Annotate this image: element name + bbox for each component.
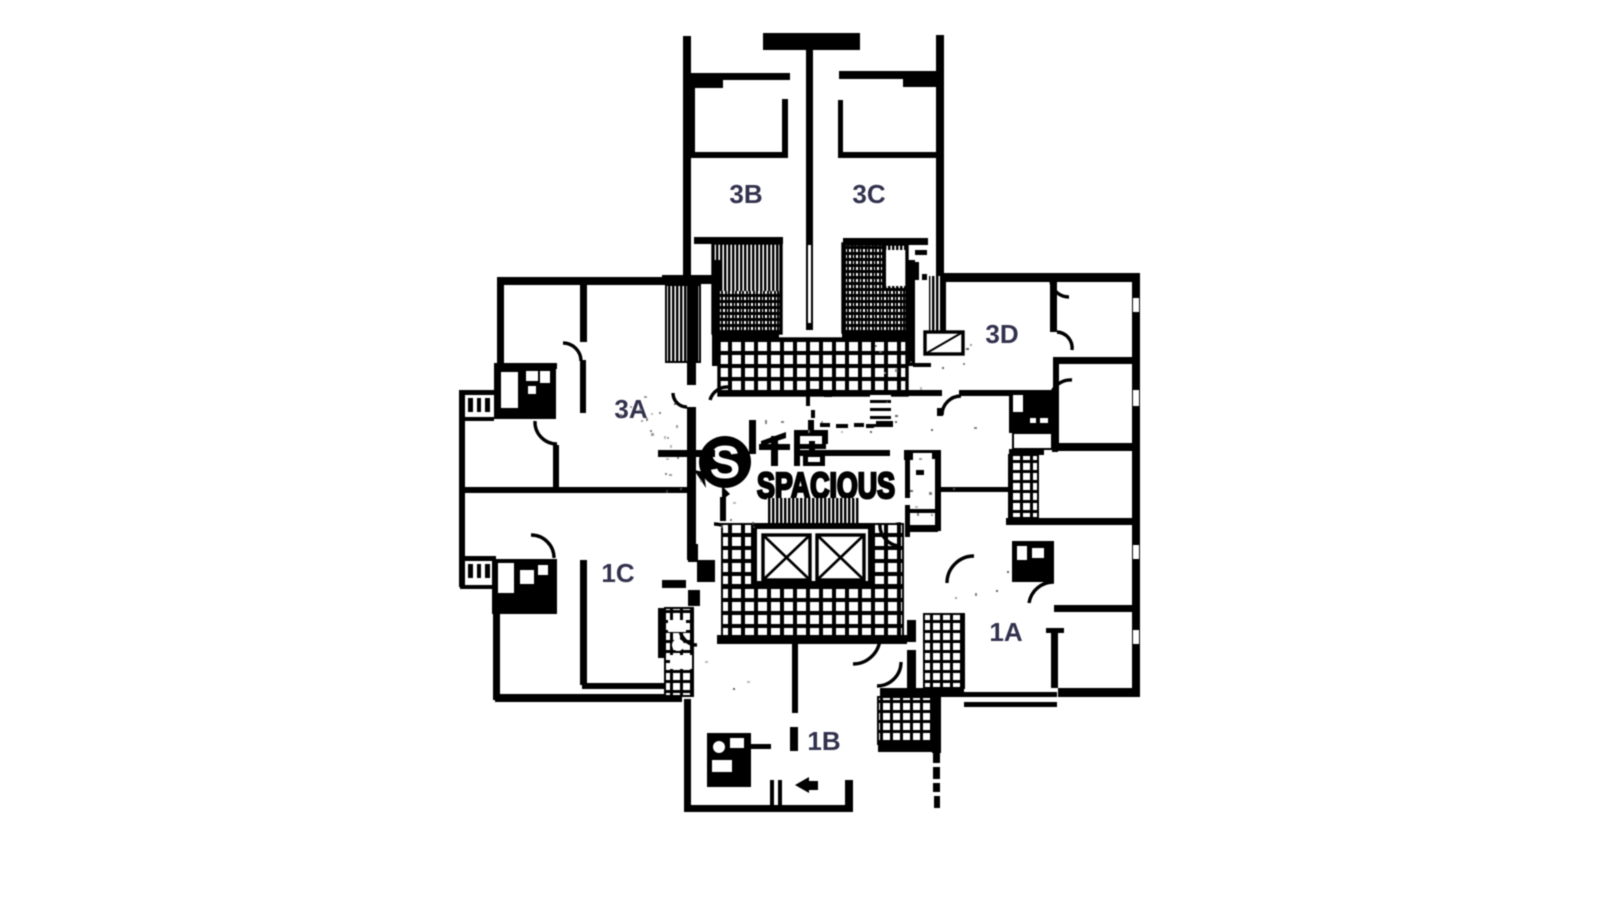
svg-text:1C: 1C: [601, 558, 634, 588]
svg-text:3D: 3D: [985, 319, 1018, 349]
svg-text:S: S: [710, 436, 741, 488]
svg-text:1B: 1B: [807, 726, 840, 756]
svg-text:3B: 3B: [729, 179, 762, 209]
svg-text:3A: 3A: [614, 394, 647, 424]
svg-text:1A: 1A: [989, 617, 1022, 647]
svg-text:3C: 3C: [852, 179, 885, 209]
